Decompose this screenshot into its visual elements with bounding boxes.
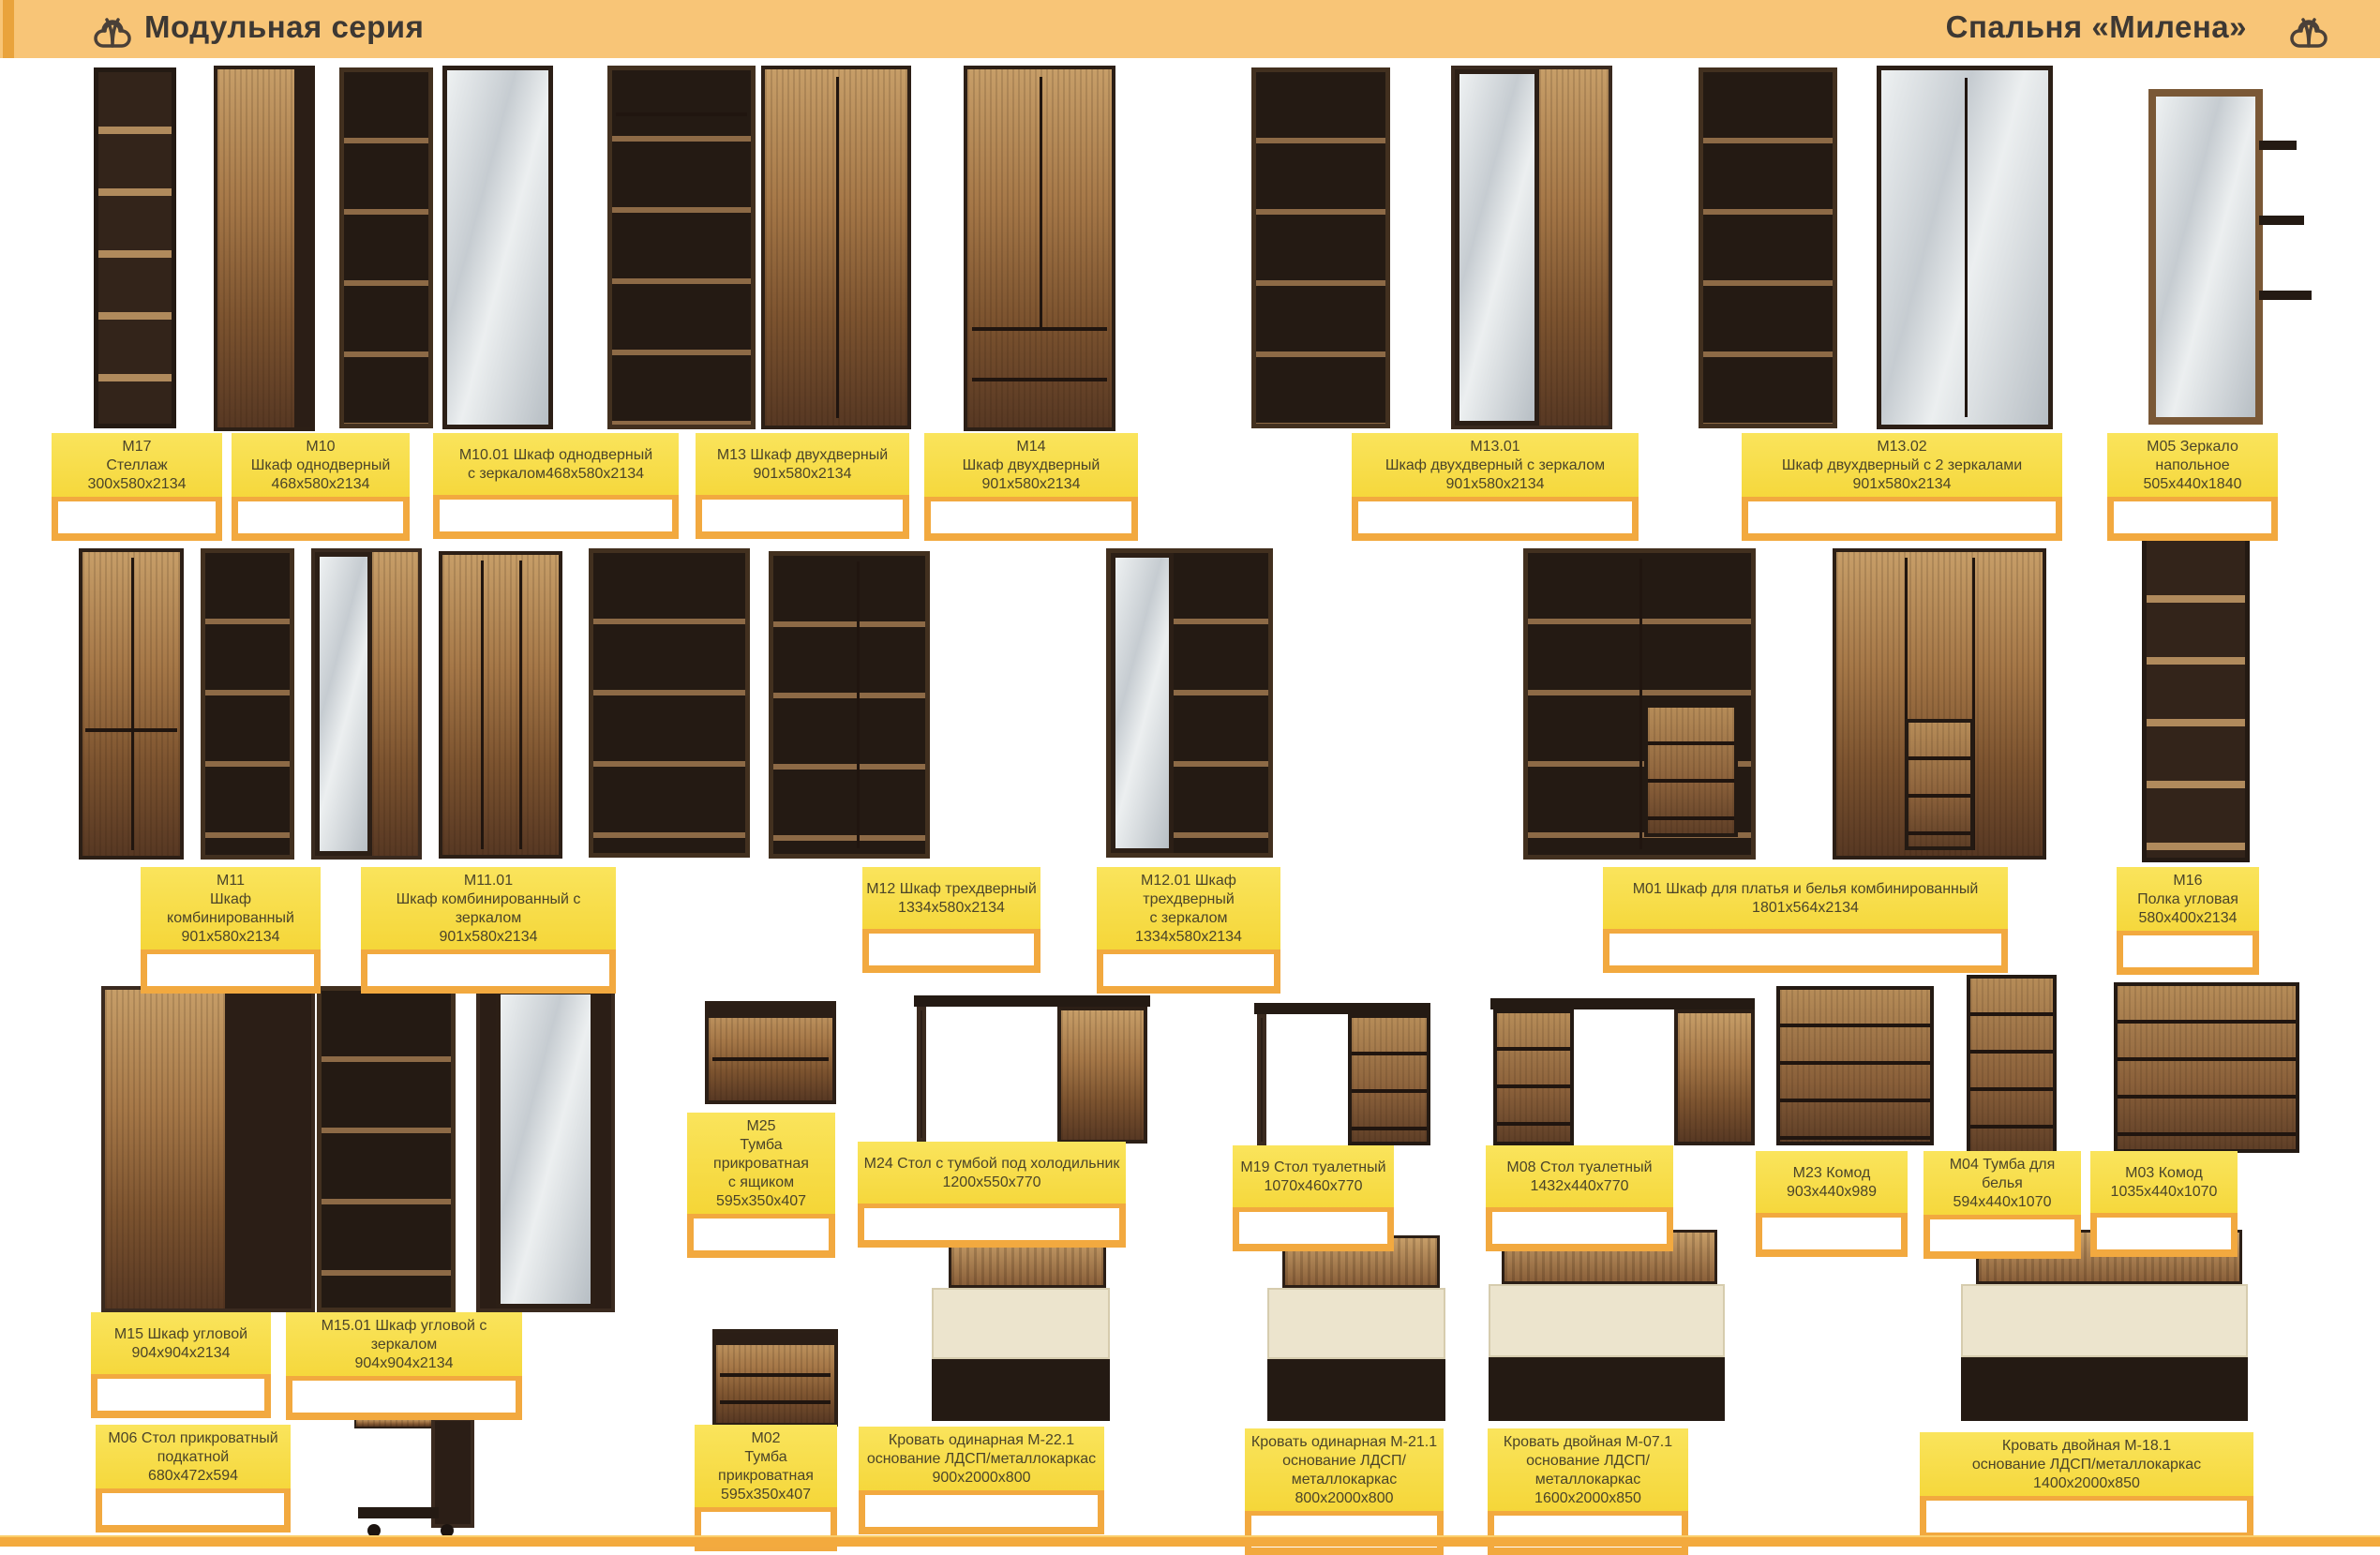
product-card-m03: М03 Комод 1035х440х1070 xyxy=(2090,1151,2238,1257)
price-input[interactable] xyxy=(238,501,403,533)
furniture-image-m05-shelf xyxy=(2259,216,2304,225)
furniture-image-m06-shelf xyxy=(358,1507,439,1518)
furniture-image-m12-doors xyxy=(439,551,562,859)
product-label: М13.02 Шкаф двухдверный с 2 зеркалами 90… xyxy=(1742,433,2062,497)
furniture-image-m08-drawers xyxy=(1493,1009,1574,1145)
furniture-image-m23 xyxy=(1776,986,1934,1145)
furniture-image-m22-1-mattress xyxy=(932,1288,1110,1359)
price-box xyxy=(2107,497,2278,541)
price-input[interactable] xyxy=(440,500,672,531)
furniture-image-m03 xyxy=(2114,982,2299,1153)
product-label: М06 Стол прикроватный подкатной 680х472х… xyxy=(96,1425,291,1488)
furniture-image-m10-01-open xyxy=(339,67,433,428)
price-input[interactable] xyxy=(1492,1212,1667,1244)
product-label: М15 Шкаф угловой 904х904х2134 xyxy=(91,1312,271,1374)
product-card-m24: М24 Стол с тумбой под холодильник 1200х5… xyxy=(858,1142,1126,1248)
product-card-m12: М12 Шкаф трехдверный 1334х580х2134 xyxy=(862,867,1040,973)
furniture-image-m13-02-open xyxy=(1699,67,1837,428)
furniture-image-m13-01-open xyxy=(1251,67,1390,428)
furniture-image-m05-shelf xyxy=(2259,291,2312,300)
product-label: Кровать одинарная М-21.1 основание ЛДСП/… xyxy=(1245,1428,1444,1511)
price-box xyxy=(696,495,909,539)
product-label: М23 Комод 903х440х989 xyxy=(1756,1151,1908,1213)
product-card-m19: М19 Стол туалетный 1070х460х770 xyxy=(1233,1145,1394,1251)
price-box xyxy=(1603,929,2008,973)
price-input[interactable] xyxy=(869,934,1034,965)
price-input[interactable] xyxy=(1930,1219,2074,1251)
furniture-image-m10 xyxy=(214,66,315,431)
furniture-image-m05-mirror xyxy=(2148,89,2263,425)
product-card-m23: М23 Комод 903х440х989 xyxy=(1756,1151,1908,1257)
furniture-image-m24-top xyxy=(914,995,1150,1007)
product-label: М11 Шкаф комбинированный 901х580х2134 xyxy=(141,867,321,949)
furniture-image-m12-01 xyxy=(1106,548,1273,858)
price-box xyxy=(687,1214,835,1258)
product-label: М13.01 Шкаф двухдверный с зеркалом 901х5… xyxy=(1352,433,1639,497)
price-input[interactable] xyxy=(1748,501,2056,533)
furniture-image-m04 xyxy=(1967,975,2057,1155)
furniture-image-m13-01-mirror xyxy=(1451,66,1612,429)
price-input[interactable] xyxy=(102,1493,284,1525)
price-box xyxy=(1486,1207,1673,1251)
furniture-image-m15-01-mirror xyxy=(476,986,615,1312)
product-card-m01: М01 Шкаф для платья и белья комбинирован… xyxy=(1603,867,2008,973)
price-input[interactable] xyxy=(865,1495,1098,1527)
product-card-m13-01: М13.01 Шкаф двухдверный с зеркалом 901х5… xyxy=(1352,433,1639,541)
product-label: М13 Шкаф двухдверный 901х580х2134 xyxy=(696,433,909,495)
furniture-image-m21-1-mattress xyxy=(1267,1288,1445,1359)
product-label: М05 Зеркало напольное 505х440х1840 xyxy=(2107,433,2278,497)
price-box xyxy=(1920,1496,2253,1540)
price-input[interactable] xyxy=(931,501,1131,533)
page-header: Модульная серия Спальня «Милена» xyxy=(0,0,2380,58)
product-label: М14 Шкаф двухдверный 901х580х2134 xyxy=(924,433,1138,497)
price-box xyxy=(1245,1511,1444,1555)
product-label: М10.01 Шкаф однодверный с зеркалом468х58… xyxy=(433,433,679,495)
furniture-image-m21-1-base xyxy=(1267,1359,1445,1421)
price-box xyxy=(141,949,321,994)
price-input[interactable] xyxy=(702,500,903,531)
product-card-m15-01: М15.01 Шкаф угловой с зеркалом 904х904х2… xyxy=(286,1312,522,1420)
price-box xyxy=(859,1490,1104,1534)
product-card-m18-1: Кровать двойная М-18.1 основание ЛДСП/ме… xyxy=(1920,1432,2253,1540)
furniture-image-m24-cabinet xyxy=(1057,1007,1147,1144)
page-title-left: Модульная серия xyxy=(144,9,424,45)
price-input[interactable] xyxy=(694,1219,829,1250)
price-input[interactable] xyxy=(2114,501,2271,533)
price-input[interactable] xyxy=(58,501,216,533)
furniture-image-m19-leg xyxy=(1257,1014,1266,1145)
furniture-image-m07-1-base xyxy=(1489,1357,1725,1421)
furniture-image-m18-1-base xyxy=(1961,1357,2248,1421)
price-input[interactable] xyxy=(2123,935,2253,967)
header-edge-strip xyxy=(3,0,14,58)
furniture-image-m02 xyxy=(712,1329,838,1427)
price-input[interactable] xyxy=(2097,1218,2231,1249)
product-label: М16 Полка угловая 580х400х2134 xyxy=(2117,867,2259,931)
furniture-image-m08-top xyxy=(1490,998,1755,1009)
product-label: М11.01 Шкаф комбинированный с зеркалом 9… xyxy=(361,867,616,949)
price-box xyxy=(858,1204,1126,1248)
product-card-m10: М10 Шкаф однодверный 468х580х2134 xyxy=(232,433,410,541)
price-input[interactable] xyxy=(1926,1501,2247,1533)
product-label: М24 Стол с тумбой под холодильник 1200х5… xyxy=(858,1142,1126,1204)
product-label: М15.01 Шкаф угловой с зеркалом 904х904х2… xyxy=(286,1312,522,1376)
furniture-image-m14 xyxy=(964,66,1115,431)
product-card-m14: М14 Шкаф двухдверный 901х580х2134 xyxy=(924,433,1138,541)
price-box xyxy=(1233,1207,1394,1251)
product-card-m05: М05 Зеркало напольное 505х440х1840 xyxy=(2107,433,2278,541)
price-box xyxy=(2090,1213,2238,1257)
product-card-m12-01: М12.01 Шкаф трехдверный с зеркалом 1334х… xyxy=(1097,867,1280,994)
price-box xyxy=(2117,931,2259,975)
product-card-m10-01: М10.01 Шкаф однодверный с зеркалом468х58… xyxy=(433,433,679,539)
product-card-m11-01: М11.01 Шкаф комбинированный с зеркалом 9… xyxy=(361,867,616,994)
price-box xyxy=(1756,1213,1908,1257)
furniture-image-m13-02-mirrors xyxy=(1877,66,2053,429)
price-input[interactable] xyxy=(1609,934,2001,965)
price-box xyxy=(91,1374,271,1418)
furniture-image-m18-1-mattress xyxy=(1961,1284,2248,1357)
product-card-m17: М17 Стеллаж 300х580х2134 xyxy=(52,433,222,541)
furniture-image-m12-open-wide xyxy=(769,551,930,859)
furniture-image-m17 xyxy=(94,67,176,428)
product-card-m08: М08 Стол туалетный 1432х440х770 xyxy=(1486,1145,1673,1251)
furniture-image-m25 xyxy=(705,1001,836,1104)
furniture-image-m12-open xyxy=(589,548,750,858)
price-box xyxy=(361,949,616,994)
product-card-m04: М04 Тумба для белья 594х440х1070 xyxy=(1923,1151,2081,1259)
product-label: М02 Тумба прикроватная 595х350х407 xyxy=(695,1425,837,1507)
furniture-image-m13-open xyxy=(607,66,756,429)
furniture-image-m11-open xyxy=(201,548,294,860)
furniture-image-m13-doors xyxy=(761,66,911,429)
price-box xyxy=(96,1488,291,1533)
price-input[interactable] xyxy=(292,1381,516,1413)
price-box xyxy=(1352,497,1639,541)
furniture-image-m22-1-base xyxy=(932,1359,1110,1421)
price-box xyxy=(52,497,222,541)
product-label: М12.01 Шкаф трехдверный с зеркалом 1334х… xyxy=(1097,867,1280,949)
furniture-image-m16 xyxy=(2142,536,2250,862)
product-card-m13: М13 Шкаф двухдверный 901х580х2134 xyxy=(696,433,909,539)
product-label: М25 Тумба прикроватная с ящиком 595х350х… xyxy=(687,1113,835,1214)
product-label: М10 Шкаф однодверный 468х580х2134 xyxy=(232,433,410,497)
product-label: Кровать двойная М-07.1 основание ЛДСП/ме… xyxy=(1488,1428,1688,1511)
price-input[interactable] xyxy=(147,954,314,986)
price-box xyxy=(924,497,1138,541)
product-label: Кровать одинарная М-22.1 основание ЛДСП/… xyxy=(859,1427,1104,1490)
price-input[interactable] xyxy=(1358,501,1632,533)
product-label: М19 Стол туалетный 1070х460х770 xyxy=(1233,1145,1394,1207)
product-card-m16: М16 Полка угловая 580х400х2134 xyxy=(2117,867,2259,975)
product-card-m06: М06 Стол прикроватный подкатной 680х472х… xyxy=(96,1425,291,1533)
product-label: М12 Шкаф трехдверный 1334х580х2134 xyxy=(862,867,1040,929)
price-box xyxy=(433,495,679,539)
furniture-image-m01-doors xyxy=(1833,548,2046,860)
product-label: М03 Комод 1035х440х1070 xyxy=(2090,1151,2238,1213)
footer-bar xyxy=(0,1535,2380,1547)
furniture-image-m11-01 xyxy=(311,548,422,860)
furniture-image-m19-top xyxy=(1254,1003,1430,1014)
price-box xyxy=(286,1376,522,1420)
furniture-image-m01-open xyxy=(1523,548,1756,860)
product-card-m02: М02 Тумба прикроватная 595х350х407 xyxy=(695,1425,837,1551)
price-box xyxy=(1742,497,2062,541)
product-label: М04 Тумба для белья 594х440х1070 xyxy=(1923,1151,2081,1215)
price-input[interactable] xyxy=(1239,1212,1387,1244)
furniture-image-m15 xyxy=(101,986,315,1312)
furniture-image-m08-cabinet xyxy=(1674,1009,1755,1145)
furniture-image-m19-drawers xyxy=(1348,1014,1430,1145)
product-label: М17 Стеллаж 300х580х2134 xyxy=(52,433,222,497)
price-input[interactable] xyxy=(1762,1218,1901,1249)
brand-logo-icon xyxy=(90,8,135,50)
furniture-image-m24-leg xyxy=(917,1007,926,1142)
price-box xyxy=(1488,1511,1688,1555)
price-box xyxy=(232,497,410,541)
price-box xyxy=(862,929,1040,973)
product-card-m13-02: М13.02 Шкаф двухдверный с 2 зеркалами 90… xyxy=(1742,433,2062,541)
furniture-image-m15-01-open xyxy=(317,986,456,1312)
price-box xyxy=(1923,1215,2081,1259)
furniture-image-m07-1-mattress xyxy=(1489,1284,1725,1357)
price-input[interactable] xyxy=(1103,954,1274,986)
product-label: М01 Шкаф для платья и белья комбинирован… xyxy=(1603,867,2008,929)
price-input[interactable] xyxy=(97,1379,264,1411)
furniture-image-m10-01-mirror xyxy=(442,66,553,429)
product-card-m22-1: Кровать одинарная М-22.1 основание ЛДСП/… xyxy=(859,1427,1104,1534)
page-title-right: Спальня «Милена» xyxy=(1946,9,2247,45)
product-card-m25: М25 Тумба прикроватная с ящиком 595х350х… xyxy=(687,1113,835,1258)
price-input[interactable] xyxy=(864,1208,1119,1240)
product-label: М08 Стол туалетный 1432х440х770 xyxy=(1486,1145,1673,1207)
price-input[interactable] xyxy=(367,954,609,986)
brand-logo-icon xyxy=(2286,8,2331,50)
furniture-image-m05-shelf xyxy=(2259,141,2297,150)
product-card-m15: М15 Шкаф угловой 904х904х2134 xyxy=(91,1312,271,1418)
product-card-m11: М11 Шкаф комбинированный 901х580х2134 xyxy=(141,867,321,994)
furniture-image-m11-doors xyxy=(79,548,184,860)
price-box xyxy=(1097,949,1280,994)
product-label: Кровать двойная М-18.1 основание ЛДСП/ме… xyxy=(1920,1432,2253,1496)
